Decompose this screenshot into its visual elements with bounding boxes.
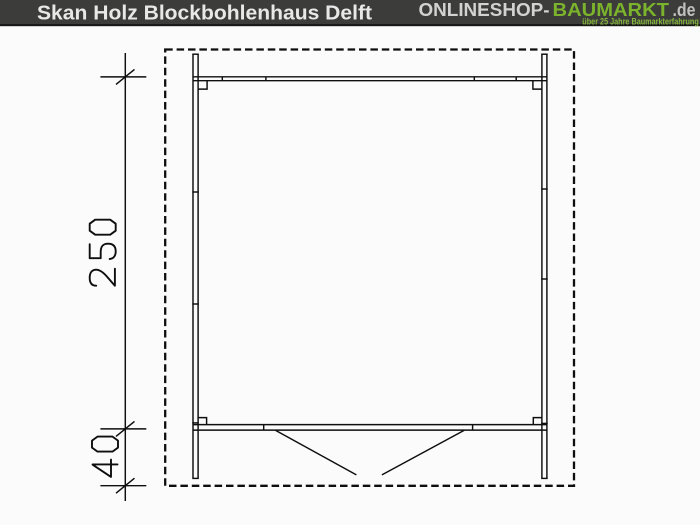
svg-text:über 25 Jahre Baumarkterfahrun: über 25 Jahre Baumarkterfahrung	[582, 17, 699, 28]
svg-text:ONLINESHOP-: ONLINESHOP-	[419, 0, 550, 20]
svg-text:Skan Holz Blockbohlenhaus Delf: Skan Holz Blockbohlenhaus Delft	[37, 3, 372, 25]
